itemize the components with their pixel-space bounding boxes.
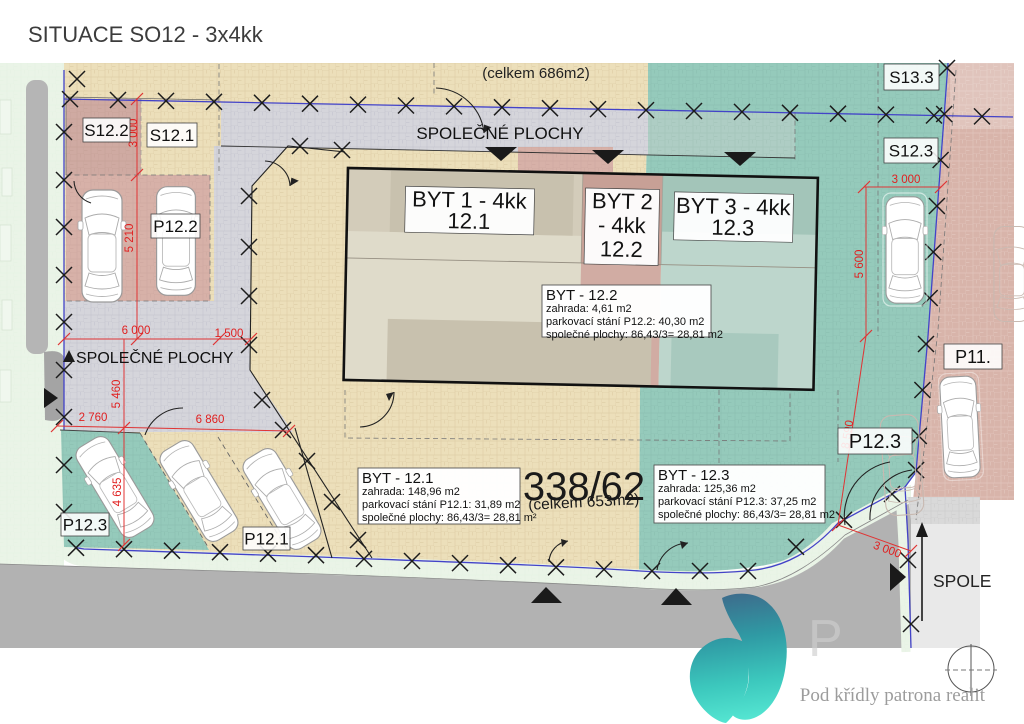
- svg-text:zahrada: 125,36 m2: zahrada: 125,36 m2: [658, 483, 756, 495]
- svg-text:5 210: 5 210: [124, 224, 136, 253]
- svg-text:P: P: [808, 610, 843, 668]
- svg-text:12.3: 12.3: [711, 215, 754, 241]
- svg-text:SITUACE SO12 - 3x4kk: SITUACE SO12 - 3x4kk: [28, 22, 264, 47]
- svg-text:BYT - 12.1: BYT - 12.1: [362, 470, 433, 487]
- svg-text:6 000: 6 000: [122, 325, 151, 337]
- svg-text:1 500: 1 500: [215, 328, 244, 340]
- svg-text:3 000: 3 000: [892, 174, 921, 186]
- svg-text:P11.: P11.: [955, 347, 991, 367]
- svg-text:zahrada: 148,96 m2: zahrada: 148,96 m2: [362, 486, 460, 498]
- svg-text:BYT 2: BYT 2: [592, 188, 653, 214]
- svg-text:P12.1: P12.1: [244, 530, 288, 549]
- svg-text:SPOLEČNÉ PLOCHY: SPOLEČNÉ PLOCHY: [76, 348, 234, 367]
- svg-text:SPOLE: SPOLE: [933, 571, 991, 591]
- svg-text:4 635: 4 635: [112, 478, 124, 507]
- svg-text:- 4kk: - 4kk: [598, 212, 647, 238]
- svg-text:2 760: 2 760: [79, 412, 108, 424]
- svg-text:6 860: 6 860: [196, 414, 225, 426]
- svg-text:BYT - 12.3: BYT - 12.3: [658, 467, 729, 484]
- svg-text:12.2: 12.2: [600, 236, 643, 262]
- svg-text:společné plochy: 86,43/3= 28,8: společné plochy: 86,43/3= 28,81 m2: [658, 509, 835, 521]
- svg-text:S12.2: S12.2: [84, 121, 128, 140]
- svg-text:S13.3: S13.3: [889, 68, 933, 87]
- svg-text:parkovací stání P12.3: 37,25 m: parkovací stání P12.3: 37,25 m2: [658, 496, 816, 508]
- svg-text:SPOLEČNÉ PLOCHY: SPOLEČNÉ PLOCHY: [416, 124, 583, 143]
- svg-text:společné plochy: 86,43/3= 28,8: společné plochy: 86,43/3= 28,81 m2: [546, 329, 723, 341]
- svg-text:parkovací stání P12.1: 31,89 m: parkovací stání P12.1: 31,89 m2: [362, 499, 520, 511]
- svg-text:společné plochy: 86,43/3= 28,8: společné plochy: 86,43/3= 28,81 m²: [362, 512, 537, 524]
- svg-text:P12.3: P12.3: [849, 431, 901, 453]
- svg-text:P12.2: P12.2: [153, 217, 197, 236]
- svg-text:5 460: 5 460: [111, 380, 123, 409]
- svg-text:5 600: 5 600: [854, 250, 866, 279]
- svg-text:Pod křídly patrona realit: Pod křídly patrona realit: [800, 685, 986, 706]
- svg-text:(celkem 686m2): (celkem 686m2): [482, 65, 590, 82]
- svg-text:12.1: 12.1: [447, 208, 490, 234]
- svg-text:S12.1: S12.1: [150, 126, 194, 145]
- svg-text:BYT - 12.2: BYT - 12.2: [546, 287, 617, 304]
- svg-text:zahrada: 4,61 m2: zahrada: 4,61 m2: [546, 303, 632, 315]
- svg-text:parkovací stání P12.2: 40,30 m: parkovací stání P12.2: 40,30 m2: [546, 316, 704, 328]
- svg-text:S12.3: S12.3: [889, 142, 933, 161]
- svg-text:P12.3: P12.3: [63, 516, 107, 535]
